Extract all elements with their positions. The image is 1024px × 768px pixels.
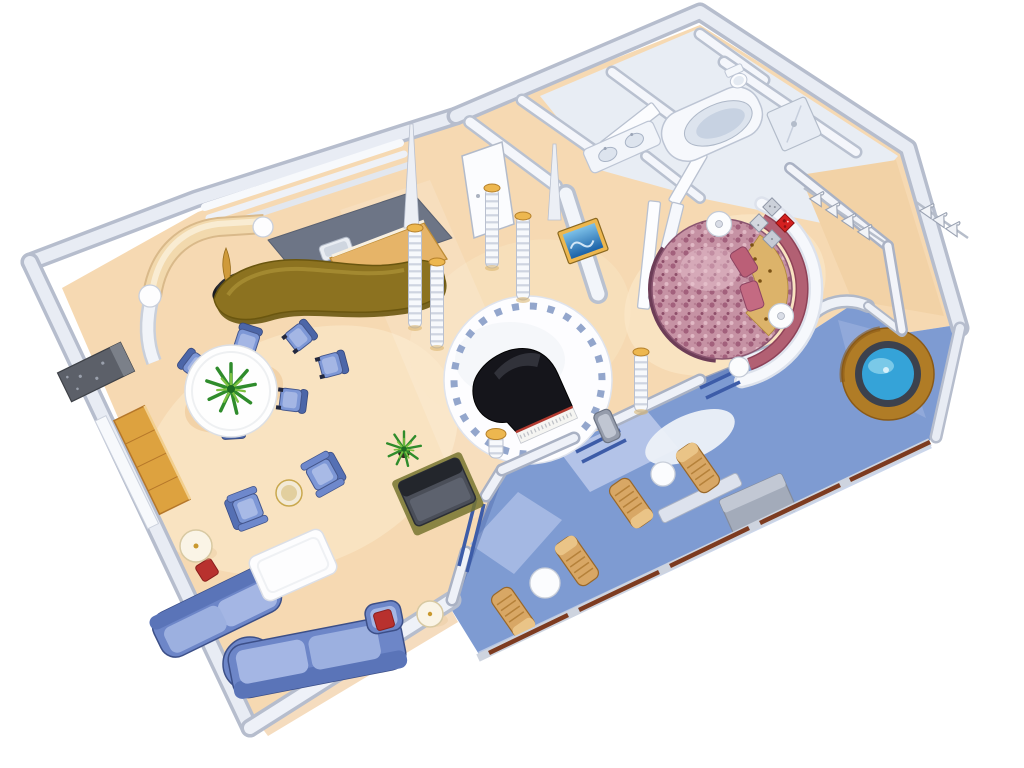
column [484, 184, 500, 271]
suite-floorplan-canvas [0, 0, 1024, 768]
column [633, 348, 649, 415]
column-cylinder [139, 285, 161, 307]
dining-chair [276, 386, 309, 413]
balcony-table [530, 568, 560, 598]
foot-stool [729, 357, 749, 377]
whirlpool-tub [842, 328, 934, 420]
whirlpool-water [862, 348, 914, 400]
balcony-table [651, 462, 675, 486]
floorplan-stage [0, 0, 1024, 768]
column-cylinder [253, 217, 273, 237]
column [515, 212, 531, 303]
column [407, 224, 423, 331]
column-short [486, 429, 506, 459]
column [429, 258, 445, 351]
